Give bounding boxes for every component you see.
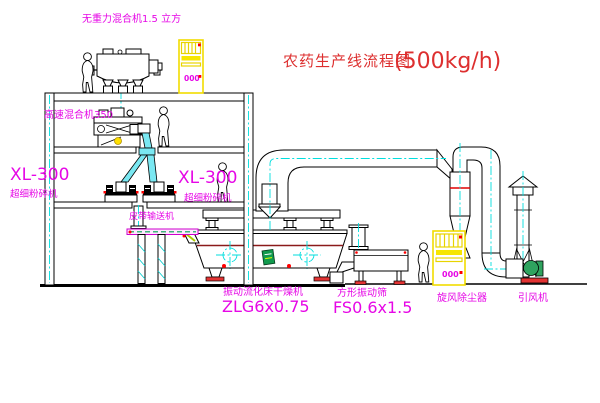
label-sieve-model: FS0.6x1.5 (333, 298, 412, 317)
pulverizer-left (104, 182, 139, 202)
drawing-canvas: 000 (0, 0, 600, 403)
roof-slab (45, 93, 253, 101)
control-cabinet-2: 000 (433, 231, 465, 285)
third-floor-slab (45, 202, 132, 208)
label-mid-mill-name: 超细粉碎机 (184, 192, 232, 204)
label-high-speed-mixer: 高速混合机350 (44, 108, 113, 121)
fluid-bed-dryer (183, 210, 348, 281)
page-title: 农药生产线流程图 (283, 52, 411, 70)
label-fan: 引风机 (518, 291, 548, 304)
fan-motor (524, 261, 539, 276)
second-floor-slab (45, 147, 136, 153)
label-belt-conveyor: 皮带输送机 (129, 210, 174, 222)
label-left-mill-name: 超细粉碎机 (10, 188, 58, 200)
label-cyclone: 旋风除尘器 (437, 291, 487, 304)
pulverizer-right (142, 182, 177, 202)
cad-flow-diagram: 000 (0, 0, 600, 403)
mixer-handwheel (115, 138, 122, 145)
induced-draft-fan (506, 259, 548, 283)
label-dryer-model: ZLG6x0.75 (222, 297, 310, 316)
sieve-bin (330, 272, 343, 283)
ground-lines (40, 284, 587, 287)
cabinet1-readout: 000 (184, 74, 200, 83)
sieve-body (354, 250, 408, 271)
label-mid-mill-model: XL-300 (178, 168, 237, 188)
page-title-capacity: (500kg/h) (394, 49, 501, 74)
cabinet2-readout: 000 (442, 270, 459, 279)
label-left-mill-model: XL-300 (10, 165, 69, 185)
label-gravity-mixer: 无重力混合机1.5 立方 (82, 12, 181, 25)
dryer-nameplate (262, 249, 275, 264)
worker-roof (82, 53, 93, 92)
fan-inlet-box (506, 259, 523, 278)
control-cabinet-1: 000 (179, 40, 203, 93)
worker-second-floor (158, 107, 169, 146)
fan-base (521, 278, 548, 283)
worker-ground (418, 243, 429, 282)
